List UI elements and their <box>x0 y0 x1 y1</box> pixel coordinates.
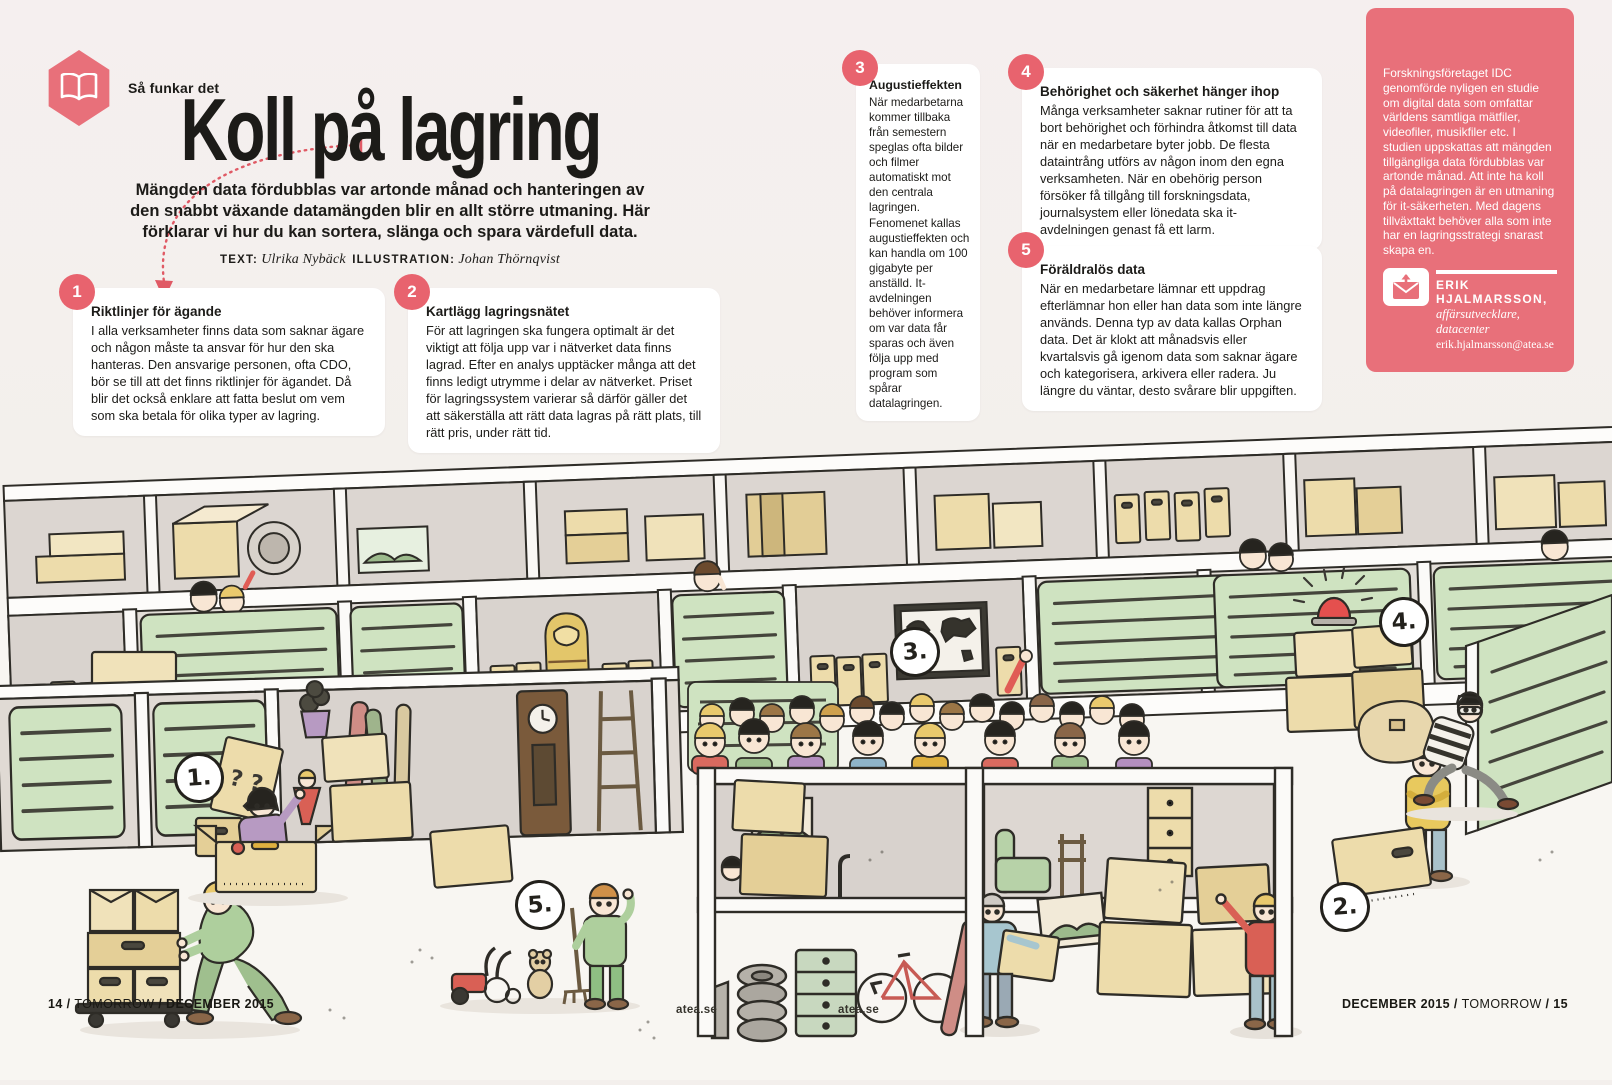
separator: / <box>1546 997 1550 1011</box>
tip-body: När en medarbetare lämnar ett uppdrag ef… <box>1040 280 1306 399</box>
illustration-canvas: ? ? <box>0 390 1612 1080</box>
tire-stack <box>738 965 786 1041</box>
storage-facility-illustration: ? ? <box>0 390 1612 1080</box>
floor-label-atea: atea.se <box>676 1004 717 1016</box>
tip-card-3: 3 Augustieffekten När medarbetarna komme… <box>856 64 980 421</box>
chest-of-drawers <box>796 950 856 1036</box>
email-icon <box>1383 268 1429 306</box>
fact-sidebar: Forskningsföretaget IDC genomförde nylig… <box>1366 8 1574 372</box>
contact-name: ERIK HJALMARSSON, <box>1436 278 1557 306</box>
cart-boxes <box>88 890 180 1003</box>
page-number: 15 <box>1553 997 1568 1011</box>
byline-illustration-name: Johan Thörnqvist <box>458 252 560 267</box>
tip-title: Föräldralös data <box>1040 262 1306 277</box>
magazine-name: TOMORROW <box>74 997 154 1011</box>
contact-block: ERIK HJALMARSSON, affärsutvecklare, data… <box>1383 268 1557 351</box>
issue-date: DECEMBER 2015 <box>1342 997 1450 1011</box>
contact-text: ERIK HJALMARSSON, affärsutvecklare, data… <box>1436 270 1557 351</box>
teddy-bear <box>528 950 552 998</box>
tip-number-badge: 4 <box>1008 54 1044 90</box>
standfirst: Mängden data fördubblas var artonde måna… <box>120 180 660 243</box>
tip-title: Behörighet och säkerhet hänger ihop <box>1040 84 1306 99</box>
magazine-name: TOMORROW <box>1462 997 1542 1011</box>
tip-body: När medarbetarna kommer tillbaka från se… <box>869 95 970 411</box>
sidebar-body: Forskningsföretaget IDC genomförde nylig… <box>1383 66 1557 258</box>
tip-card-5: 5 Föräldralös data När en medarbetare lä… <box>1022 246 1322 411</box>
contact-role: affärsutvecklare, datacenter <box>1436 307 1557 337</box>
open-book-icon <box>60 73 98 103</box>
page-title: Koll på lagring <box>180 89 600 173</box>
tip-title: Augustieffekten <box>869 78 970 92</box>
separator: / <box>1454 997 1458 1011</box>
byline-text-name: Ulrika Nybäck <box>261 252 346 267</box>
tip-body: Många verksamheter saknar rutiner för at… <box>1040 102 1306 238</box>
tip-number-badge: 3 <box>842 50 878 86</box>
byline: TEXT: Ulrika Nybäck ILLUSTRATION: Johan … <box>95 252 685 268</box>
separator: / <box>67 997 71 1011</box>
byline-illustration-label: ILLUSTRATION: <box>352 254 455 266</box>
tip-number-badge: 2 <box>394 274 430 310</box>
grandfather-clock <box>517 690 571 835</box>
separator: / <box>158 997 162 1011</box>
tip-card-4: 4 Behörighet och säkerhet hänger ihop Må… <box>1022 68 1322 250</box>
floor-label-atea: atea.se <box>838 1004 879 1016</box>
tip-number-badge: 1 <box>59 274 95 310</box>
footer-left: 14 / TOMORROW / DECEMBER 2015 <box>48 997 274 1011</box>
contact-email[interactable]: erik.hjalmarsson@atea.se <box>1436 339 1557 351</box>
magazine-spread: Så funkar det Koll på lagring Mängden da… <box>0 0 1612 1080</box>
issue-date: DECEMBER 2015 <box>166 997 274 1011</box>
footer-right: DECEMBER 2015 / TOMORROW / 15 <box>1342 997 1568 1011</box>
tip-number-badge: 5 <box>1008 232 1044 268</box>
tip-title: Riktlinjer för ägande <box>91 304 369 319</box>
page-number: 14 <box>48 997 63 1011</box>
article-header: Koll på lagring Mängden data fördubblas … <box>95 92 685 279</box>
byline-text-label: TEXT: <box>220 254 258 266</box>
tip-title: Kartlägg lagringsnätet <box>426 304 704 319</box>
